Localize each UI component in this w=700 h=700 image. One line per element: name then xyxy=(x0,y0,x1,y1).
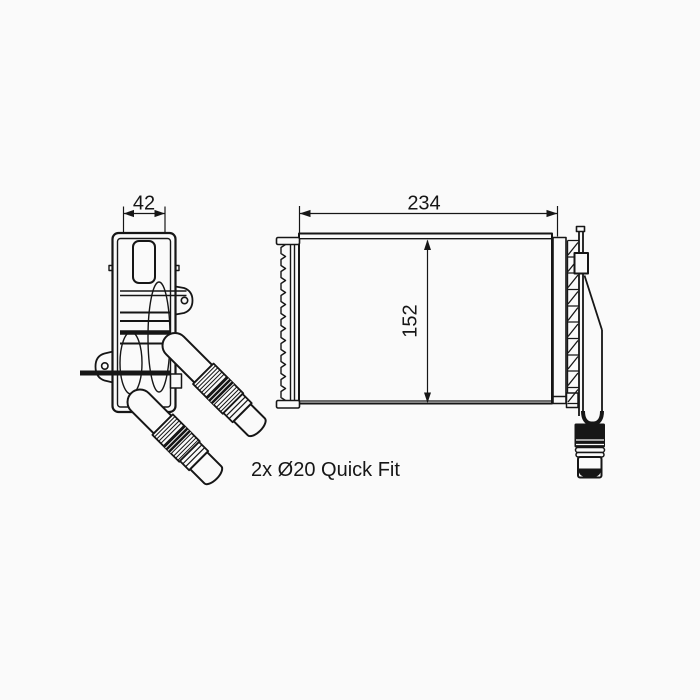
annotation-quick-fit: 2x Ø20 Quick Fit xyxy=(251,459,400,481)
oval-small xyxy=(120,332,142,394)
arrowhead-right xyxy=(155,210,166,217)
top-slot xyxy=(133,241,155,283)
housing-outer xyxy=(113,233,176,412)
housing-inner xyxy=(118,239,171,408)
strip-cap-bottom xyxy=(277,401,300,409)
heater-core-technical-drawing: 42 234 152 2x Ø20 Quick Fit xyxy=(0,0,700,700)
arrowhead-right xyxy=(547,210,558,217)
strip-cap-top xyxy=(277,238,300,245)
side-view xyxy=(80,233,270,489)
drawing-canvas: 42 234 152 2x Ø20 Quick Fit xyxy=(0,0,700,700)
retaining-clip xyxy=(575,253,589,274)
tab-hole xyxy=(181,297,187,303)
pipe-slant-edge xyxy=(585,276,603,331)
arrowhead-left xyxy=(300,210,311,217)
front-view xyxy=(277,227,606,478)
dim-height-label: 152 xyxy=(400,304,422,337)
bar-top-cap xyxy=(577,227,585,232)
fin-zigzag-edge xyxy=(281,245,286,401)
dim-width-label: 234 xyxy=(407,193,440,215)
side-notch xyxy=(171,374,182,388)
fin-strip-left xyxy=(277,238,300,409)
pipe-shoulder xyxy=(583,411,602,424)
tab-hole xyxy=(102,363,108,369)
mounting-tab-left xyxy=(96,352,114,383)
dim-depth-label: 42 xyxy=(133,193,155,215)
tank-bottom-bracket xyxy=(567,393,579,408)
core-face xyxy=(299,234,552,404)
